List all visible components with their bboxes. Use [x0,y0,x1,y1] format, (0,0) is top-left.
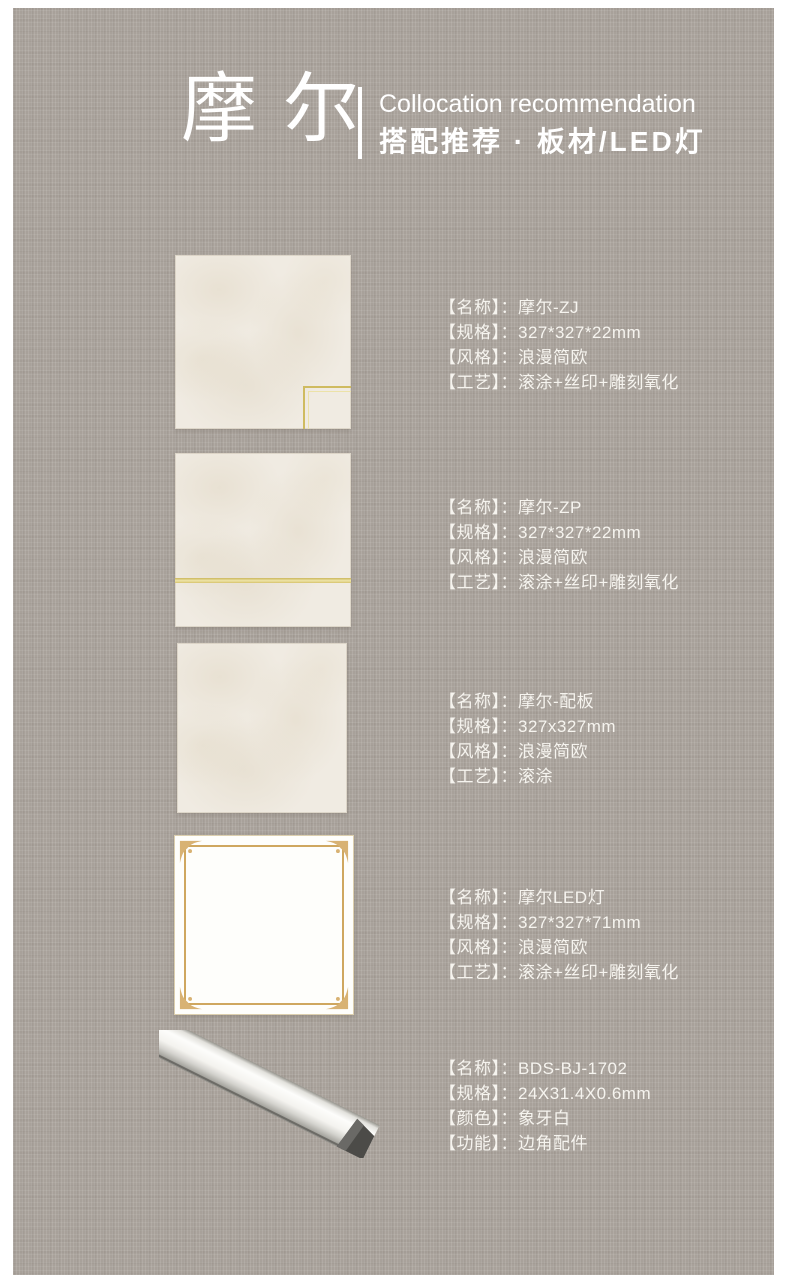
header-title-english: Collocation recommendation [379,90,696,119]
spec-line: 【规格】：327x327mm [439,714,616,739]
spec-line: 【工艺】：滚涂+丝印+雕刻氧化 [439,570,679,595]
spec-value: 浪漫简欧 [518,348,588,367]
product-image-led-panel [174,835,354,1015]
spec-line: 【工艺】：滚涂 [439,764,616,789]
product-image-tile-zj [175,255,351,429]
poster-page: 摩尔 Collocation recommendation 搭配推荐 · 板材/… [0,0,790,1287]
spec-line: 【名称】：摩尔-ZP [439,495,679,520]
product-specs-peiban: 【名称】：摩尔-配板 【规格】：327x327mm 【风格】：浪漫简欧 【工艺】… [439,689,616,789]
corner-ornament-icon [325,986,349,1010]
spec-line: 【风格】：浪漫简欧 [439,345,679,370]
spec-value: 摩尔-ZJ [518,298,579,317]
spec-value: 滚涂+丝印+雕刻氧化 [518,573,679,592]
product-specs-trim: 【名称】：BDS-BJ-1702 【规格】：24X31.4X0.6mm 【颜色】… [439,1056,651,1156]
spec-line: 【工艺】：滚涂+丝印+雕刻氧化 [439,370,679,395]
spec-label: 【工艺】： [439,963,518,982]
spec-line: 【名称】：BDS-BJ-1702 [439,1056,651,1081]
spec-value: 滚涂 [518,767,553,786]
spec-line: 【规格】：327*327*71mm [439,910,679,935]
spec-label: 【规格】： [439,523,518,542]
spec-value: 327x327mm [518,717,616,736]
spec-label: 【名称】： [439,498,518,517]
spec-line: 【规格】：327*327*22mm [439,520,679,545]
spec-label: 【名称】： [439,692,518,711]
header-divider [358,87,362,159]
spec-line: 【名称】：摩尔LED灯 [439,885,679,910]
spec-value: 象牙白 [518,1109,571,1128]
spec-label: 【风格】： [439,742,518,761]
spec-value: BDS-BJ-1702 [518,1059,627,1078]
spec-label: 【工艺】： [439,373,518,392]
spec-value: 327*327*71mm [518,913,641,932]
spec-label: 【工艺】： [439,573,518,592]
gold-corner-accent [303,386,351,430]
spec-value: 24X31.4X0.6mm [518,1084,651,1103]
spec-label: 【规格】： [439,717,518,736]
corner-ornament-icon [179,840,203,864]
spec-line: 【工艺】：滚涂+丝印+雕刻氧化 [439,960,679,985]
spec-label: 【规格】： [439,913,518,932]
corner-ornament-icon [179,986,203,1010]
spec-line: 【风格】：浪漫简欧 [439,935,679,960]
corner-ornament-icon [325,840,349,864]
spec-label: 【名称】： [439,298,518,317]
spec-value: 摩尔-ZP [518,498,582,517]
product-specs-led: 【名称】：摩尔LED灯 【规格】：327*327*71mm 【风格】：浪漫简欧 … [439,885,679,985]
spec-label: 【规格】： [439,1084,518,1103]
spec-label: 【功能】： [439,1134,518,1153]
spec-value: 浪漫简欧 [518,742,588,761]
spec-line: 【风格】：浪漫简欧 [439,545,679,570]
spec-line: 【名称】：摩尔-ZJ [439,295,679,320]
spec-value: 327*327*22mm [518,323,641,342]
spec-label: 【名称】： [439,888,518,907]
spec-label: 【风格】： [439,348,518,367]
spec-line: 【规格】：327*327*22mm [439,320,679,345]
spec-value: 摩尔-配板 [518,692,594,711]
spec-line: 【规格】：24X31.4X0.6mm [439,1081,651,1106]
product-image-corner-strip [159,1030,381,1158]
poster-canvas: 摩尔 Collocation recommendation 搭配推荐 · 板材/… [13,8,774,1275]
spec-line: 【名称】：摩尔-配板 [439,689,616,714]
header-title-chinese: 搭配推荐 · 板材/LED灯 [379,120,706,160]
spec-value: 327*327*22mm [518,523,641,542]
spec-value: 摩尔LED灯 [518,888,605,907]
spec-label: 【颜色】： [439,1109,518,1128]
spec-value: 滚涂+丝印+雕刻氧化 [518,373,679,392]
product-image-tile-zp [175,453,351,627]
gold-line-accent [175,578,351,583]
spec-line: 【功能】：边角配件 [439,1131,651,1156]
spec-label: 【工艺】： [439,767,518,786]
spec-line: 【风格】：浪漫简欧 [439,739,616,764]
product-specs-zp: 【名称】：摩尔-ZP 【规格】：327*327*22mm 【风格】：浪漫简欧 【… [439,495,679,595]
product-specs-zj: 【名称】：摩尔-ZJ 【规格】：327*327*22mm 【风格】：浪漫简欧 【… [439,295,679,395]
brand-title: 摩尔 [181,64,385,154]
spec-value: 浪漫简欧 [518,938,588,957]
spec-value: 边角配件 [518,1134,588,1153]
spec-value: 滚涂+丝印+雕刻氧化 [518,963,679,982]
spec-label: 【风格】： [439,938,518,957]
spec-label: 【名称】： [439,1059,518,1078]
spec-label: 【规格】： [439,323,518,342]
spec-line: 【颜色】：象牙白 [439,1106,651,1131]
spec-value: 浪漫简欧 [518,548,588,567]
product-image-tile-peiban [177,643,347,813]
led-gold-frame [184,845,344,1005]
spec-label: 【风格】： [439,548,518,567]
